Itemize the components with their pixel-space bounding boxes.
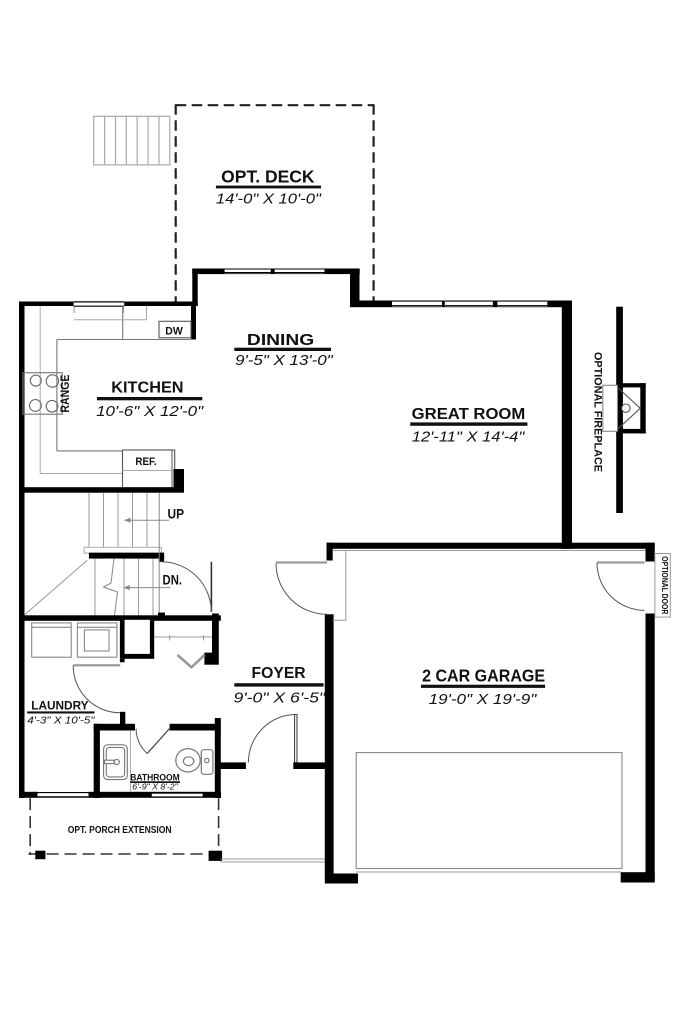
svg-text:DW: DW (165, 326, 183, 338)
svg-text:6'-9" X 8'-2": 6'-9" X 8'-2" (132, 782, 179, 791)
svg-text:OPTIONAL DOOR: OPTIONAL DOOR (660, 556, 670, 614)
svg-text:DN.: DN. (163, 572, 183, 588)
svg-text:GREAT ROOM: GREAT ROOM (412, 406, 526, 423)
svg-text:DINING: DINING (247, 332, 314, 349)
svg-text:FOYER: FOYER (252, 665, 307, 682)
svg-text:19'-0" X 19'-9": 19'-0" X 19'-9" (429, 691, 537, 708)
svg-text:4'-3" X 10'-5": 4'-3" X 10'-5" (27, 714, 96, 726)
svg-text:2 CAR GARAGE: 2 CAR GARAGE (422, 665, 545, 685)
svg-text:14'-0" X 10'-0": 14'-0" X 10'-0" (216, 191, 322, 208)
svg-text:LAUNDRY: LAUNDRY (31, 699, 88, 713)
svg-text:BATHROOM: BATHROOM (130, 773, 180, 783)
svg-text:9'-0" X 6'-5": 9'-0" X 6'-5" (234, 689, 326, 706)
svg-text:OPT. PORCH EXTENSION: OPT. PORCH EXTENSION (68, 824, 172, 836)
svg-text:9'-5" X 13'-0": 9'-5" X 13'-0" (235, 352, 333, 369)
svg-text:OPT. DECK: OPT. DECK (221, 167, 315, 187)
svg-text:UP: UP (168, 506, 185, 522)
svg-text:OPTIONAL FIREPLACE: OPTIONAL FIREPLACE (592, 352, 604, 472)
svg-text:KITCHEN: KITCHEN (111, 380, 183, 397)
svg-text:RANGE: RANGE (58, 375, 72, 413)
svg-text:REF.: REF. (135, 456, 156, 468)
svg-text:12'-11" X 14'-4": 12'-11" X 14'-4" (412, 429, 525, 446)
svg-text:10'-6" X 12'-0": 10'-6" X 12'-0" (96, 403, 204, 420)
